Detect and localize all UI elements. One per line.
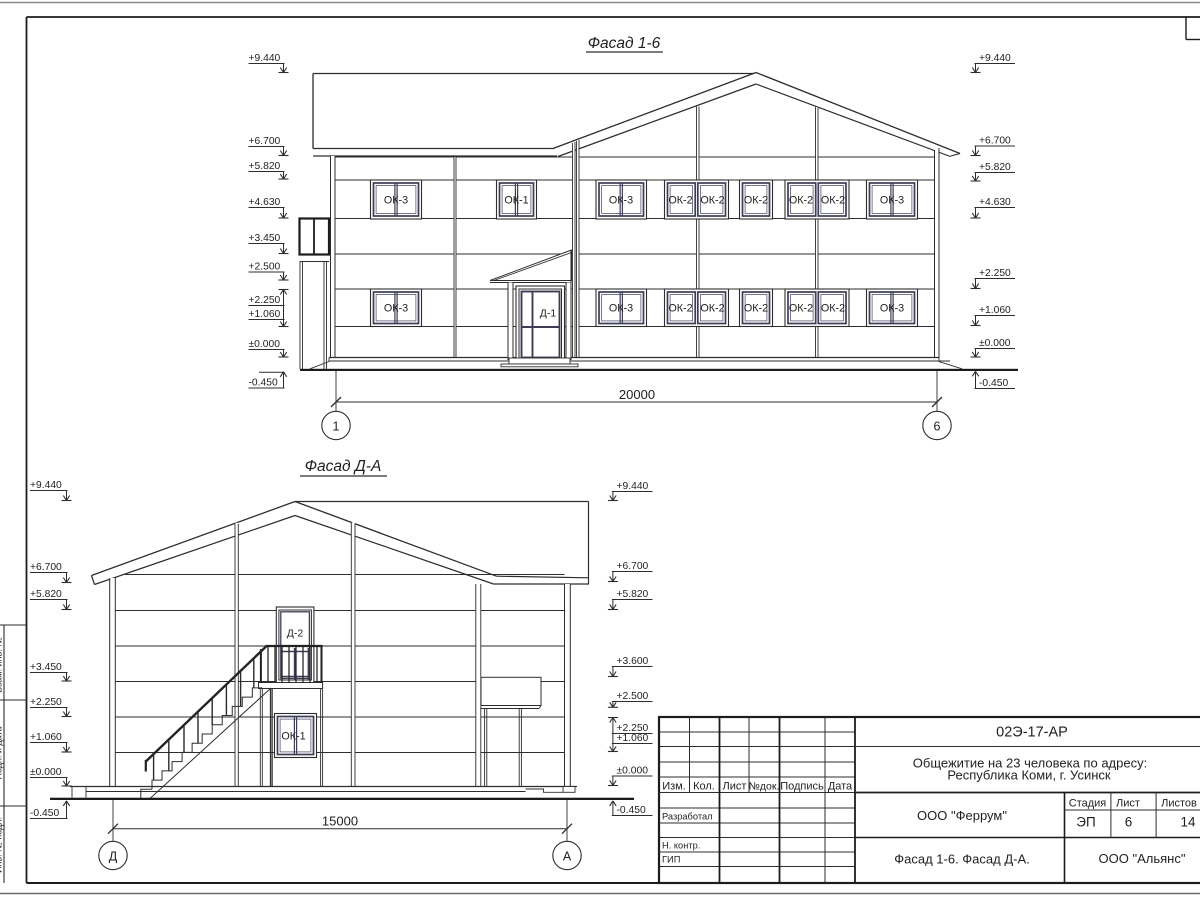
svg-text:Н. контр.: Н. контр. — [662, 841, 700, 851]
svg-text:ОК-3: ОК-3 — [880, 303, 904, 315]
svg-text:+1.060: +1.060 — [30, 732, 62, 743]
svg-text:ОК-2: ОК-2 — [789, 303, 813, 315]
svg-text:±0.000: ±0.000 — [30, 767, 62, 778]
svg-text:Дата: Дата — [828, 781, 853, 793]
svg-text:ОК-3: ОК-3 — [880, 194, 904, 206]
svg-text:6: 6 — [1125, 815, 1133, 830]
svg-text:6: 6 — [934, 420, 941, 434]
svg-text:+5.820: +5.820 — [979, 162, 1011, 173]
svg-text:+1.060: +1.060 — [617, 733, 649, 744]
svg-text:Республика Коми, г. Усинск: Республика Коми, г. Усинск — [947, 768, 1110, 783]
svg-text:ОК-2: ОК-2 — [821, 194, 845, 206]
svg-text:-0.450: -0.450 — [30, 808, 59, 819]
svg-text:Лист: Лист — [723, 781, 747, 793]
svg-text:+3.450: +3.450 — [249, 233, 281, 244]
svg-text:ОК-1: ОК-1 — [504, 194, 528, 206]
svg-text:Фасад Д-А: Фасад Д-А — [305, 458, 382, 475]
svg-text:ОК-3: ОК-3 — [609, 303, 633, 315]
svg-text:Фасад 1-6. Фасад Д-А.: Фасад 1-6. Фасад Д-А. — [894, 852, 1030, 867]
svg-text:ОК-2: ОК-2 — [700, 303, 724, 315]
svg-text:+4.630: +4.630 — [249, 197, 281, 208]
svg-text:1: 1 — [333, 420, 340, 434]
svg-text:+2.250: +2.250 — [30, 697, 62, 708]
svg-text:ОК-1: ОК-1 — [281, 730, 305, 742]
svg-text:-0.450: -0.450 — [979, 378, 1008, 389]
svg-text:+6.700: +6.700 — [979, 136, 1011, 147]
svg-text:ОК-3: ОК-3 — [609, 194, 633, 206]
svg-text:+3.600: +3.600 — [617, 656, 649, 667]
svg-text:ОК-2: ОК-2 — [744, 194, 768, 206]
svg-text:ОК-3: ОК-3 — [384, 194, 408, 206]
svg-text:Листов: Листов — [1161, 798, 1197, 810]
svg-text:+1.060: +1.060 — [979, 305, 1011, 316]
svg-text:Д-1: Д-1 — [540, 308, 557, 320]
svg-text:+5.820: +5.820 — [249, 161, 281, 172]
svg-text:+9.440: +9.440 — [617, 481, 649, 492]
svg-text:Кол.: Кол. — [693, 781, 715, 793]
svg-text:+1.060: +1.060 — [249, 309, 281, 320]
svg-text:14: 14 — [1180, 815, 1196, 830]
svg-text:Стадия: Стадия — [1069, 798, 1107, 810]
svg-text:+9.440: +9.440 — [249, 53, 281, 64]
svg-text:ООО "Феррум": ООО "Феррум" — [917, 808, 1007, 823]
svg-text:ГИП: ГИП — [662, 855, 680, 865]
svg-text:Подпись: Подпись — [780, 781, 824, 793]
svg-text:+6.700: +6.700 — [617, 561, 649, 572]
svg-text:ОК-2: ОК-2 — [789, 194, 813, 206]
svg-text:+2.500: +2.500 — [249, 262, 281, 273]
svg-text:+9.440: +9.440 — [30, 480, 62, 491]
svg-text:ОК-2: ОК-2 — [668, 194, 692, 206]
svg-text:Д: Д — [109, 850, 118, 864]
svg-text:ОК-2: ОК-2 — [821, 303, 845, 315]
svg-text:20000: 20000 — [619, 387, 655, 402]
svg-text:±0.000: ±0.000 — [979, 338, 1011, 349]
svg-text:ОК-2: ОК-2 — [668, 303, 692, 315]
svg-text:Д-2: Д-2 — [287, 628, 304, 640]
svg-text:±0.000: ±0.000 — [249, 339, 281, 350]
svg-text:Разработал: Разработал — [662, 812, 713, 822]
svg-text:Взам. инв. №: Взам. инв. № — [0, 637, 4, 693]
svg-text:Подп. и дата: Подп. и дата — [0, 726, 4, 779]
svg-text:ООО "Альянс": ООО "Альянс" — [1099, 851, 1186, 866]
svg-text:Фасад 1-6: Фасад 1-6 — [588, 35, 661, 52]
svg-text:+9.440: +9.440 — [979, 53, 1011, 64]
svg-text:+4.630: +4.630 — [979, 197, 1011, 208]
svg-text:ЭП: ЭП — [1076, 815, 1095, 830]
svg-text:+5.820: +5.820 — [30, 589, 62, 600]
svg-text:-0.450: -0.450 — [249, 378, 278, 389]
svg-text:+2.250: +2.250 — [979, 268, 1011, 279]
svg-text:+5.820: +5.820 — [617, 589, 649, 600]
svg-text:+6.700: +6.700 — [249, 136, 281, 147]
svg-text:Изм.: Изм. — [662, 781, 686, 793]
svg-text:ОК-3: ОК-3 — [384, 303, 408, 315]
svg-text:15000: 15000 — [322, 814, 358, 829]
svg-text:±0.000: ±0.000 — [617, 766, 649, 777]
svg-text:-0.450: -0.450 — [617, 805, 646, 816]
svg-text:ОК-2: ОК-2 — [744, 303, 768, 315]
svg-text:№док.: №док. — [749, 781, 780, 793]
svg-text:+6.700: +6.700 — [30, 562, 62, 573]
svg-text:+2.250: +2.250 — [249, 295, 281, 306]
svg-text:+3.450: +3.450 — [30, 662, 62, 673]
svg-text:ОК-2: ОК-2 — [700, 194, 724, 206]
svg-text:+2.500: +2.500 — [617, 691, 649, 702]
svg-text:02Э-17-АР: 02Э-17-АР — [996, 725, 1068, 741]
svg-text:Лист: Лист — [1116, 798, 1140, 810]
svg-text:Инв. № подл.: Инв. № подл. — [0, 817, 4, 873]
svg-text:А: А — [563, 850, 572, 864]
